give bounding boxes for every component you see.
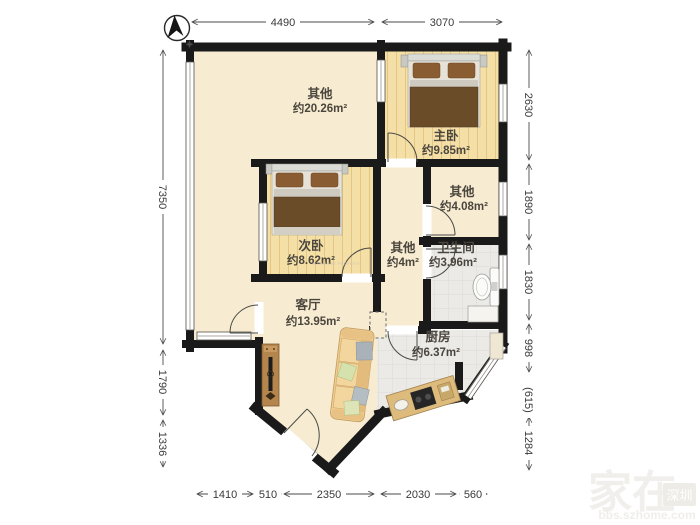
dim-bottom-1: 510 [255,488,281,501]
dim-bottom-4: 560 [460,488,486,501]
svg-text:(615): (615) [522,387,534,413]
room-label-hallway: 其他 约4m² [387,240,419,269]
window-master-right [499,84,507,122]
svg-text:客厅: 客厅 [294,297,321,312]
floor-plan-canvas: 其他 约20.26m² 主卧 约9.85m² 其他 约4.08m² 次卧 约8.… [0,0,700,525]
tv-cabinet-icon [262,344,279,406]
svg-text:主卧: 主卧 [433,128,459,143]
svg-text:约9.85m²: 约9.85m² [422,143,470,157]
svg-text:1336: 1336 [156,432,168,456]
svg-text:2350: 2350 [317,489,341,501]
window-left-band [186,62,194,330]
svg-text:2630: 2630 [522,93,534,117]
dim-bottom-3: 2030 [401,488,435,501]
svg-text:4490: 4490 [271,17,295,29]
dim-left-1: 1790 [156,365,170,399]
double-bed-icon [266,164,348,235]
svg-text:约4m²: 约4m² [387,255,419,269]
svg-text:510: 510 [259,489,277,501]
svg-text:其他: 其他 [307,86,333,101]
svg-text:998: 998 [522,339,534,357]
site-watermark: 家在 深圳 bbs.szhome.com [588,468,696,522]
double-bed-icon [401,54,487,127]
watermark-site: bbs.szhome.com [598,508,695,522]
svg-text:1410: 1410 [213,489,237,501]
svg-text:其他: 其他 [390,240,416,255]
svg-text:约13.95m²: 约13.95m² [286,314,341,328]
svg-text:1830: 1830 [522,270,534,294]
dim-right-3: 998 [522,334,536,362]
svg-text:次卧: 次卧 [298,238,324,253]
svg-text:1890: 1890 [522,190,534,214]
svg-text:约6.37m²: 约6.37m² [412,345,460,359]
svg-text:1284: 1284 [522,431,534,455]
dim-left-0: 7350 [156,180,170,214]
washer-icon [468,306,498,322]
floor-plan-page: 其他 约20.26m² 主卧 约9.85m² 其他 约4.08m² 次卧 约8.… [0,0,700,525]
svg-text:1790: 1790 [156,370,168,394]
window-bathroom [499,255,507,289]
svg-text:7350: 7350 [156,185,168,209]
dim-bottom-2: 2350 [312,488,346,501]
kitchen-counter-icon [490,333,503,359]
svg-text:2030: 2030 [406,489,430,501]
dim-right-4: (615) [522,382,536,418]
svg-text:约20.26m²: 约20.26m² [293,101,348,115]
svg-text:卫生间: 卫生间 [437,240,475,255]
dim-top-1: 3070 [425,16,459,29]
watermark-badge: 深圳 [666,488,692,503]
svg-text:约3.96m²: 约3.96m² [429,255,477,269]
dim-bottom-0: 1410 [208,488,242,501]
window-master-left [377,60,385,102]
dim-right-2: 1830 [522,265,536,299]
svg-text:其他: 其他 [449,184,475,199]
north-arrow-icon [165,16,194,49]
dim-right-1: 1890 [522,185,536,219]
dim-left-2: 1336 [156,427,170,461]
svg-text:560: 560 [464,489,482,501]
svg-text:约4.08m²: 约4.08m² [440,199,488,213]
svg-text:3070: 3070 [430,17,454,29]
svg-text:厨房: 厨房 [425,329,450,344]
dim-top-0: 4490 [266,16,300,29]
window-second-bedroom [259,203,267,261]
dim-right-5: 1284 [522,426,536,460]
dim-right-0: 2630 [522,88,536,122]
window-other-right [499,182,507,216]
property-watermark: CDEKAUSE PROPERTY [312,262,362,266]
